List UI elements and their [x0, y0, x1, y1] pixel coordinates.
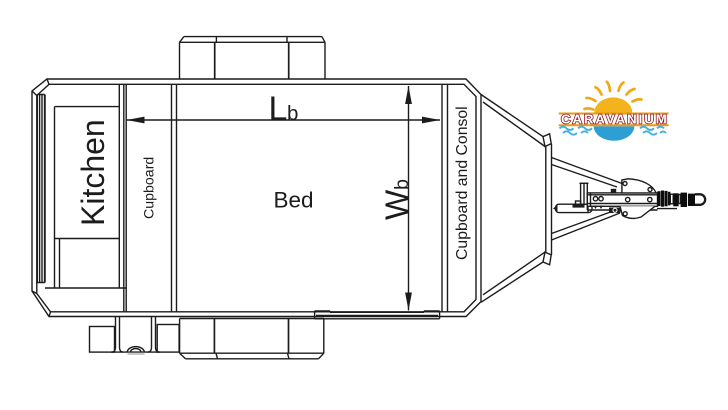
svg-text:b: b [391, 179, 413, 190]
svg-text:W: W [379, 189, 415, 220]
svg-text:Cupboard: Cupboard [142, 157, 158, 219]
svg-text:b: b [287, 102, 298, 125]
svg-text:Bed: Bed [274, 187, 314, 212]
svg-text:L: L [269, 90, 288, 128]
svg-text:Kitchen: Kitchen [75, 119, 111, 226]
svg-text:CARAVANIUM: CARAVANIUM [561, 111, 669, 126]
svg-text:Cupboard and Consol: Cupboard and Consol [454, 106, 471, 260]
